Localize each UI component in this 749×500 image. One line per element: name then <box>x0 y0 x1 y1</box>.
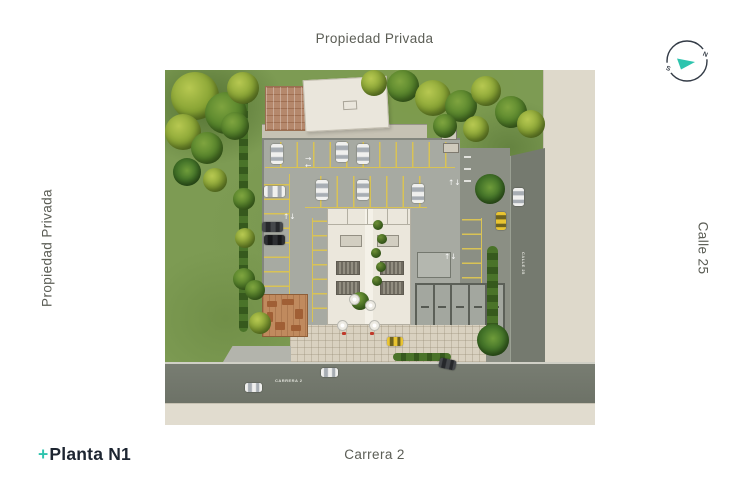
tree-icon <box>191 132 223 164</box>
tree-icon <box>475 174 505 204</box>
car-taxi <box>496 212 506 230</box>
tree-icon <box>235 228 255 248</box>
tree-icon <box>517 110 545 138</box>
car-white <box>412 184 424 203</box>
tree-icon <box>361 70 387 96</box>
car-white <box>264 186 285 197</box>
car-white <box>316 180 328 200</box>
pavement-arrow-icon: → ← <box>305 156 311 169</box>
bench-marker <box>342 332 346 335</box>
car-taxi <box>387 337 403 346</box>
floor-plan-title: +Planta N1 <box>38 444 131 465</box>
parasol-icon <box>349 294 360 305</box>
tree-icon <box>477 324 509 356</box>
car-white <box>271 144 283 164</box>
pavement-arrow-icon: ↑↓ <box>444 254 457 261</box>
car-white <box>245 383 262 392</box>
tree-icon <box>203 168 227 192</box>
car-dark <box>438 357 457 370</box>
label-propiedad-privada-left: Propiedad Privada <box>40 189 55 307</box>
site-plan: CARRERA 2 CALLE 25 → ←↑↓↑↓↑↓ <box>165 70 595 425</box>
label-calle-25-side: Calle 25 <box>696 222 711 275</box>
tree-icon <box>463 116 489 142</box>
pavement-arrow-icon: ↑↓ <box>448 180 461 187</box>
tree-icon <box>371 248 381 258</box>
car-white <box>513 188 524 206</box>
page: Propiedad Privada Propiedad Privada Call… <box>0 0 749 500</box>
tree-icon <box>373 220 383 230</box>
tree-icon <box>249 312 271 334</box>
car-white <box>357 144 369 164</box>
tree-icon <box>245 280 265 300</box>
tree-icon <box>173 158 201 186</box>
compass-needle <box>677 59 695 70</box>
logo-text: Planta N1 <box>49 444 131 464</box>
tree-icon <box>372 276 382 286</box>
tree-icon <box>377 234 387 244</box>
logo-plus-icon: + <box>38 444 48 464</box>
tree-icon <box>433 114 457 138</box>
vegetation-and-vehicles: → ←↑↓↑↓↑↓ <box>165 70 595 425</box>
tree-icon <box>221 112 249 140</box>
car-dark <box>262 222 283 232</box>
tree-icon <box>376 262 386 272</box>
tree-icon <box>227 72 259 104</box>
car-dark <box>264 235 285 245</box>
parasol-icon <box>365 300 376 311</box>
car-white <box>321 368 338 377</box>
tree-icon <box>471 76 501 106</box>
bench-marker <box>370 332 374 335</box>
compass-icon: N S <box>659 33 715 89</box>
tree-icon <box>233 188 255 210</box>
pavement-arrow-icon: ↑↓ <box>283 214 296 221</box>
parasol-icon <box>369 320 380 331</box>
label-propiedad-privada-top: Propiedad Privada <box>0 31 749 46</box>
car-white <box>357 180 369 200</box>
car-white <box>336 142 348 162</box>
parasol-icon <box>337 320 348 331</box>
